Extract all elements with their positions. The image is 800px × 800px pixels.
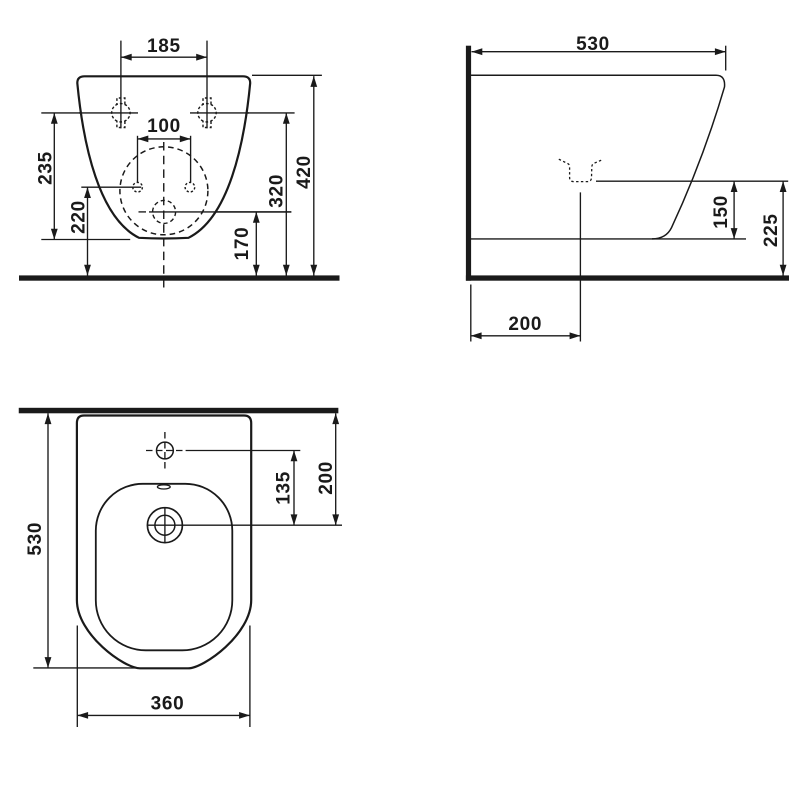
svg-text:360: 360 [151, 693, 185, 714]
svg-text:530: 530 [25, 522, 46, 556]
svg-text:185: 185 [147, 36, 181, 57]
svg-text:420: 420 [294, 155, 315, 189]
svg-text:200: 200 [316, 461, 337, 495]
svg-text:170: 170 [232, 227, 253, 261]
svg-text:320: 320 [267, 174, 288, 208]
svg-text:100: 100 [147, 116, 181, 137]
svg-text:225: 225 [761, 213, 782, 247]
svg-text:220: 220 [69, 200, 90, 234]
svg-text:150: 150 [711, 195, 732, 229]
svg-text:135: 135 [273, 471, 294, 505]
svg-text:200: 200 [508, 314, 542, 335]
svg-text:530: 530 [576, 34, 610, 55]
svg-text:235: 235 [36, 151, 57, 185]
